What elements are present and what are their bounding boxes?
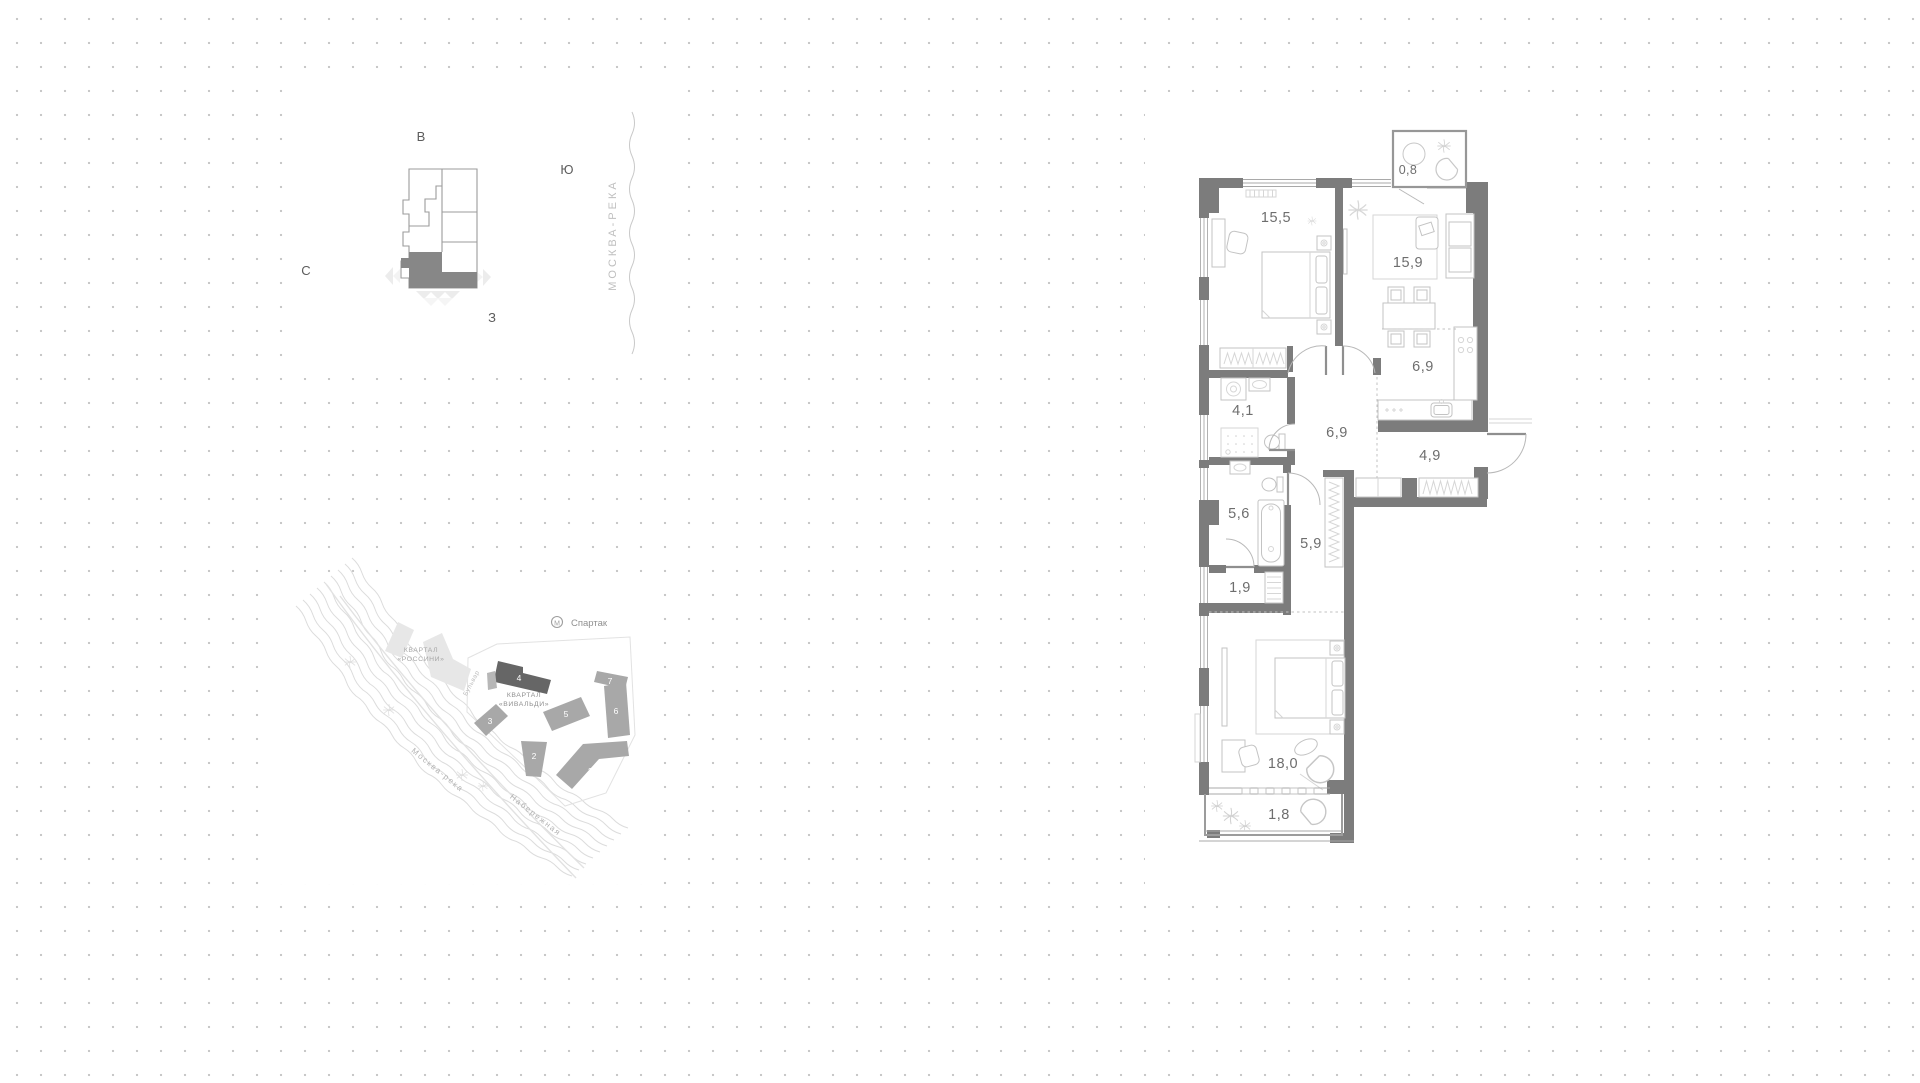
room-label-hallway: 6,9	[1326, 425, 1348, 441]
room-label-storage: 1,9	[1229, 580, 1251, 596]
room-hallway: 6,9	[1326, 425, 1348, 441]
toilet-tank	[1277, 477, 1283, 492]
metro-icon: М	[554, 621, 560, 628]
room-label-bathroom-master: 5,6	[1228, 506, 1250, 522]
room-label-bedroom-1: 15,5	[1261, 210, 1291, 226]
nightstand	[1330, 720, 1344, 734]
river-label: МОСКВА-РЕКА	[607, 179, 619, 290]
corridor-wardrobe	[1325, 478, 1343, 567]
room-label-kitchen: 6,9	[1412, 359, 1434, 375]
compass-east-label: В	[417, 129, 426, 144]
washing-machine	[1221, 378, 1246, 400]
toilet-bowl	[1262, 478, 1276, 491]
building-1-number: 1	[588, 766, 593, 776]
nightstand	[1330, 641, 1344, 655]
dresser	[1222, 648, 1227, 726]
building-7-number: 7	[608, 676, 613, 686]
building-6-number: 6	[614, 706, 619, 716]
room-label-balcony-bottom: 1,8	[1268, 807, 1290, 823]
compass-north-label: С	[301, 263, 310, 278]
vivaldi-label-line2: «ВИВАЛЬДИ»	[499, 701, 549, 708]
building-4-number: 4	[517, 673, 522, 683]
room-label-entry: 4,9	[1419, 448, 1441, 464]
basin	[1230, 461, 1250, 474]
rossini-label-line2: «РОССИНИ»	[397, 656, 444, 663]
room-label-living: 15,9	[1393, 255, 1423, 271]
building-5-number: 5	[564, 709, 569, 719]
compass-west-label: З	[488, 310, 496, 325]
metro-name: Спартак	[571, 618, 608, 629]
nightstand	[1317, 236, 1331, 250]
room-label-balcony-top: 0,8	[1399, 163, 1418, 177]
rossini-label-line1: КВАРТАЛ	[404, 647, 438, 654]
building-2-number: 2	[532, 751, 537, 761]
room-label-bedroom-2: 18,0	[1268, 756, 1298, 772]
tv	[1344, 229, 1348, 274]
compass-south-label: Ю	[560, 162, 573, 177]
desk	[1212, 219, 1225, 267]
building-3-number: 3	[488, 716, 493, 726]
dining-table	[1383, 303, 1435, 329]
desk-chair	[1226, 230, 1249, 254]
vivaldi-label-line1: КВАРТАЛ	[507, 692, 541, 699]
page-canvas: В Ю С З МОСКВА-РЕКА	[0, 0, 1920, 1078]
nightstand	[1317, 320, 1331, 334]
room-label-corridor: 5,9	[1300, 536, 1322, 552]
room-label-bathroom-guest: 4,1	[1232, 403, 1254, 419]
kitchen-counter-side	[1454, 327, 1477, 400]
